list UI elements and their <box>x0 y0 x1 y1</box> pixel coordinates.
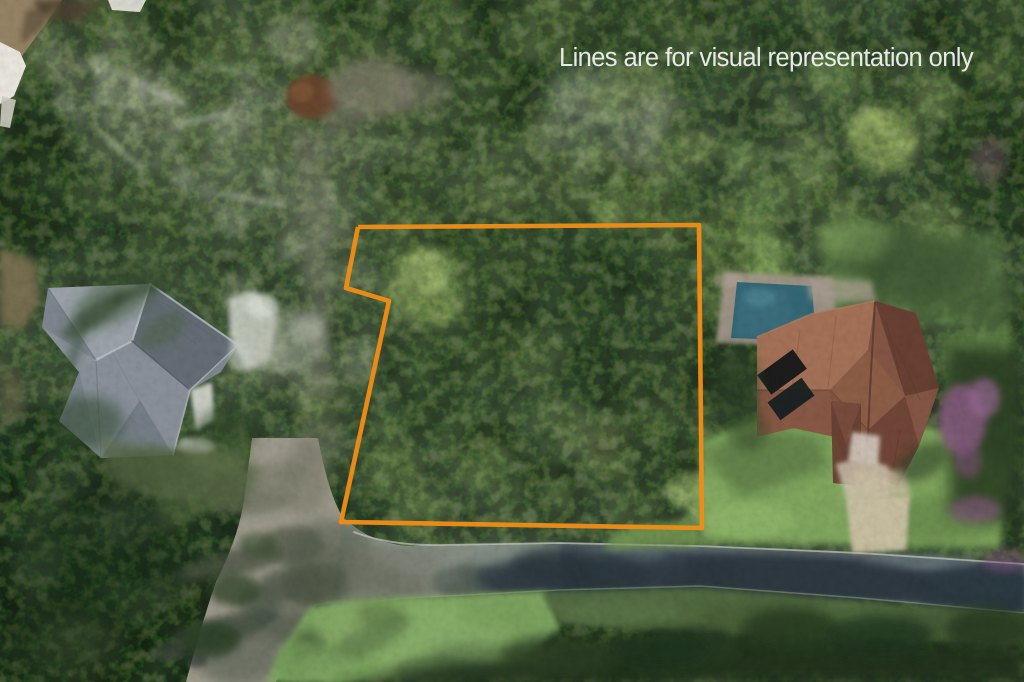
svg-text:Lines are for visual represent: Lines are for visual representation only <box>559 44 974 72</box>
